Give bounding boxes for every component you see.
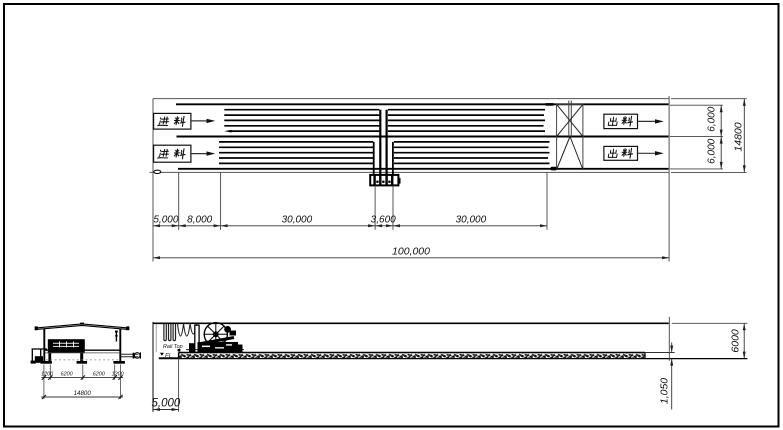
svg-text:100,000: 100,000 (392, 246, 430, 258)
svg-text:5,000: 5,000 (152, 398, 181, 410)
svg-text:6,000: 6,000 (707, 138, 718, 163)
svg-text:30,000: 30,000 (456, 215, 487, 226)
svg-text:6200: 6200 (93, 372, 105, 378)
svg-text:14800: 14800 (732, 122, 744, 151)
svg-text:1,050: 1,050 (658, 378, 670, 404)
svg-text:8,000: 8,000 (187, 215, 212, 226)
svg-text:1200: 1200 (112, 372, 124, 378)
svg-text:6200: 6200 (61, 372, 73, 378)
svg-text:14800: 14800 (74, 390, 92, 397)
svg-text:1200: 1200 (41, 372, 53, 378)
svg-text:5,000: 5,000 (153, 215, 178, 226)
svg-text:6,000: 6,000 (707, 106, 718, 131)
svg-text:3,600: 3,600 (371, 215, 396, 226)
svg-text:30,000: 30,000 (282, 215, 313, 226)
svg-text:6000: 6000 (729, 329, 741, 353)
